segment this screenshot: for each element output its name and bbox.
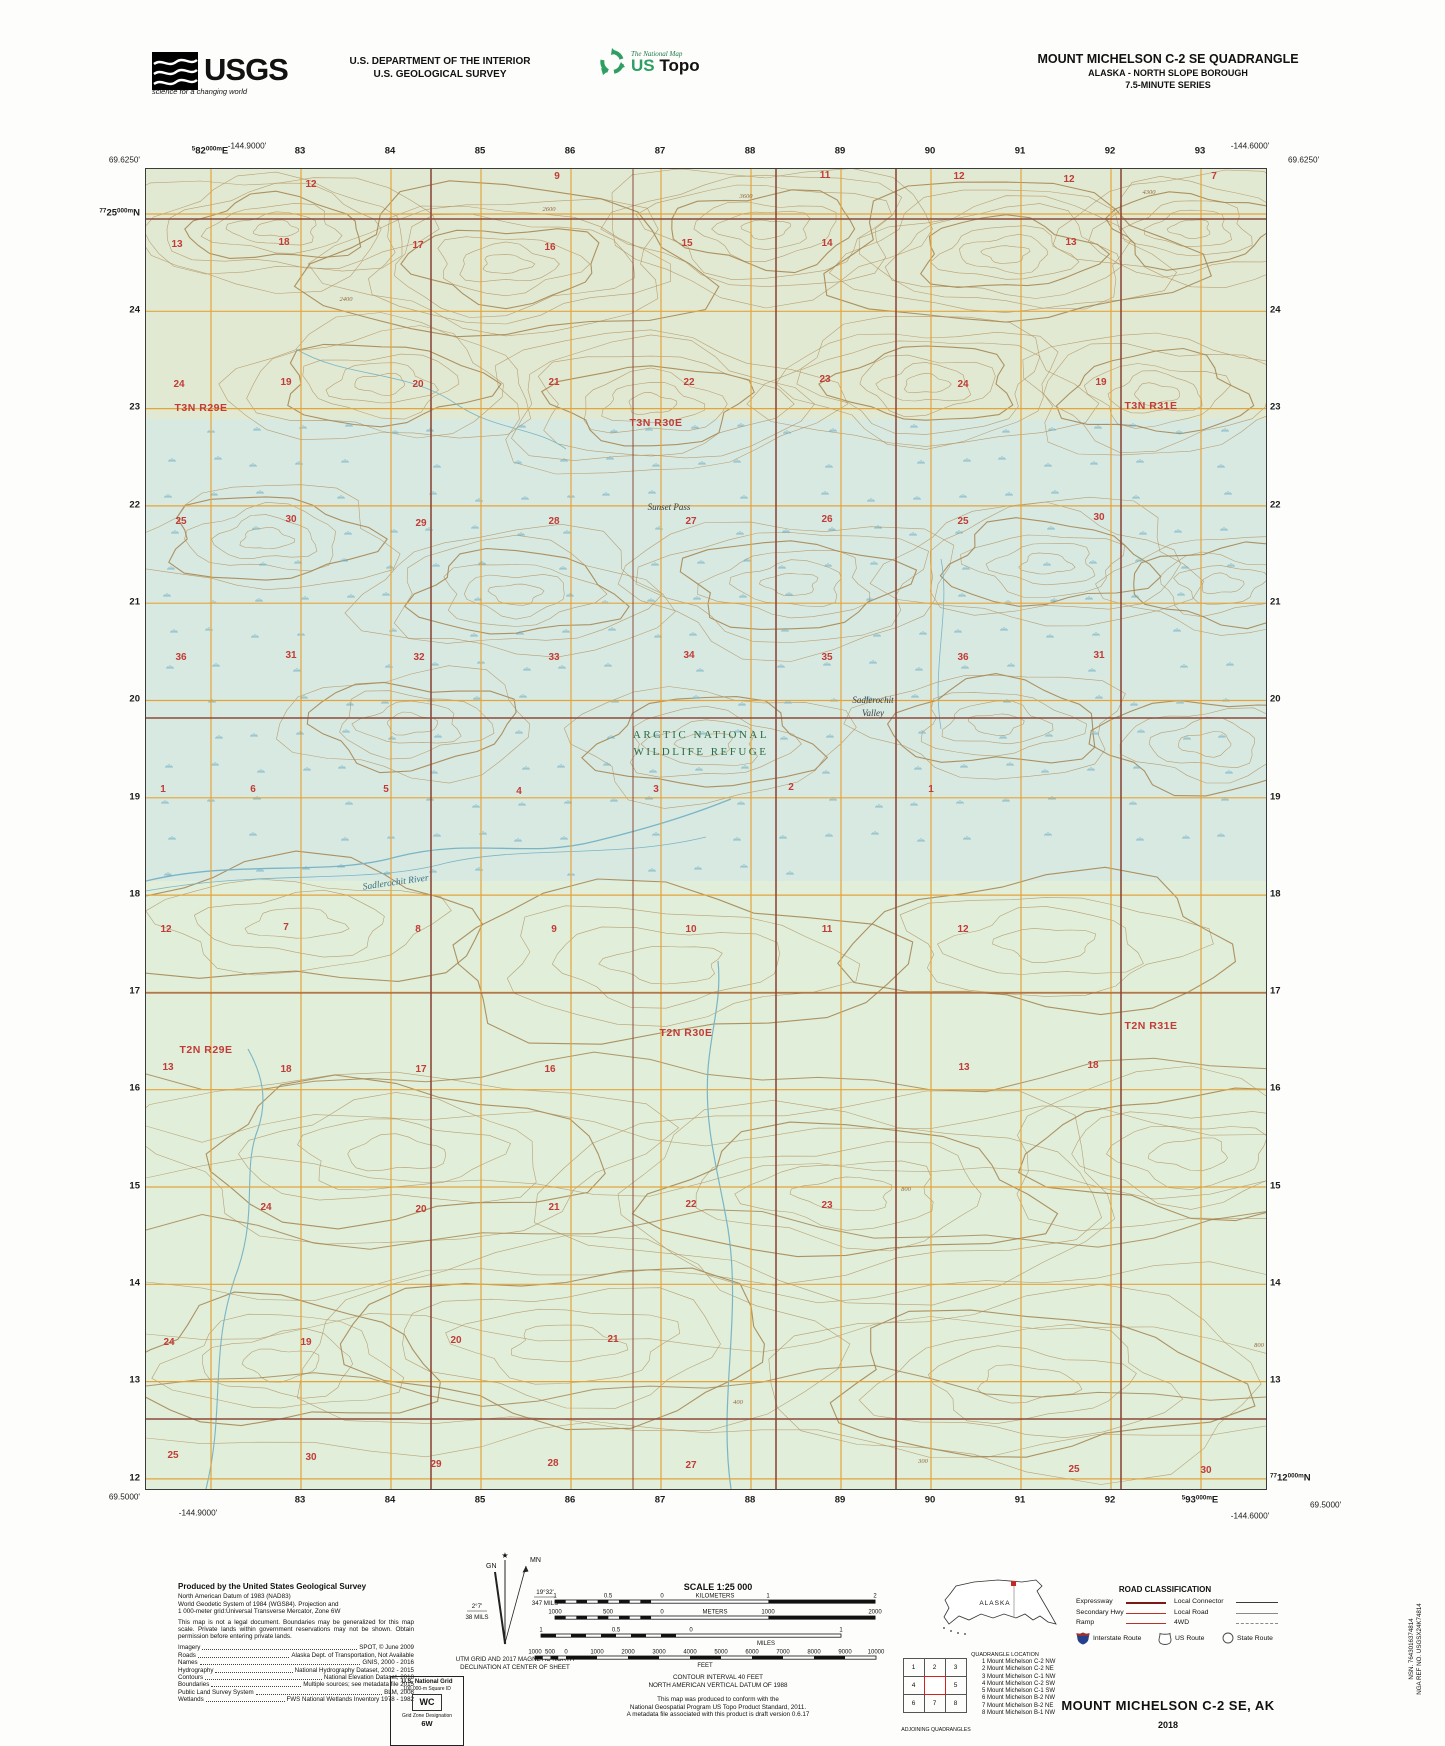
section-number: 36 (175, 652, 187, 663)
corner-coordinate: 69.6250' (1288, 156, 1319, 165)
svg-text:MN: MN (530, 1557, 541, 1564)
scale-tick-label: 1 (839, 1628, 843, 1634)
adjoining-quad-name: 3 Mount Michelson C-1 NW (982, 1674, 1055, 1681)
section-number: 7 (283, 922, 289, 933)
usng-title: U.S. National Grid (391, 1679, 463, 1685)
scale-tick-label: 2 (873, 1594, 877, 1600)
scale-tick-label: 1 (766, 1594, 770, 1600)
quad-subtitle: ALASKA - NORTH SLOPE BOROUGH (1018, 68, 1318, 78)
legal-note: This map is not a legal document. Bounda… (178, 1619, 414, 1641)
scale-unit-label: FEET (697, 1663, 713, 1669)
township-range-label: T3N R29E (174, 402, 227, 414)
scale-tick-label: 1000 (548, 1610, 562, 1616)
usng-box: U.S. National Grid 100,000-m Square ID W… (390, 1676, 464, 1746)
datum-line: 1 000-meter grid:Universal Transverse Me… (178, 1608, 414, 1616)
usgs-wave-icon (152, 52, 198, 90)
utm-grid-label-right: 24 (1270, 305, 1281, 316)
section-number: 25 (167, 1450, 179, 1461)
utm-grid-label-right: 16 (1270, 1083, 1281, 1094)
adjoining-quadrangle-caption: ADJOINING QUADRANGLES (895, 1727, 977, 1733)
pass-label: Sunset Pass (648, 502, 691, 512)
section-number: 1 (928, 784, 934, 795)
section-number: 24 (957, 379, 969, 390)
us-route-shield-icon (1158, 1632, 1172, 1645)
department-header: U.S. DEPARTMENT OF THE INTERIOR U.S. GEO… (310, 55, 570, 81)
interstate-shield-icon (1076, 1632, 1090, 1645)
utm-grid-label-left: 16 (129, 1083, 140, 1094)
scale-tick-label: 8000 (807, 1650, 821, 1656)
road-class-label: 4WD (1174, 1619, 1189, 1626)
utm-grid-label-top: 87 (655, 146, 666, 157)
road-class-sample (1236, 1613, 1278, 1614)
road-class-label: Local Road (1174, 1609, 1208, 1616)
utm-grid-label-right: 21 (1270, 597, 1281, 608)
section-number: 13 (958, 1062, 970, 1073)
adjoining-quad-name: 5 Mount Michelson C-1 SW (982, 1688, 1055, 1695)
adjoining-cell: 8 (945, 1694, 967, 1713)
section-number: 20 (415, 1204, 427, 1215)
utm-grid-label-top: 83 (295, 146, 306, 157)
road-class-label: Secondary Hwy (1076, 1609, 1124, 1616)
utm-grid-label-right: 15 (1270, 1181, 1281, 1192)
section-number: 18 (280, 1064, 292, 1075)
section-number: 17 (415, 1064, 427, 1075)
section-number: 30 (285, 514, 297, 525)
section-number: 21 (607, 1334, 619, 1345)
section-number: 24 (173, 379, 185, 390)
utm-grid-label-top: 93 (1195, 146, 1206, 157)
section-number: 19 (1095, 377, 1107, 388)
road-class-sample (1126, 1602, 1166, 1604)
state-route-circle-icon (1222, 1632, 1234, 1644)
contour-elevation-label: 800 (901, 1186, 912, 1193)
scale-tick-label: KILOMETERS (696, 1594, 735, 1600)
utm-grid-label-bottom: 89 (835, 1495, 846, 1506)
utm-grid-label: 593000mE (1182, 1495, 1219, 1506)
section-number: 19 (300, 1337, 312, 1348)
contour-elevation-label: 400 (733, 1399, 744, 1406)
section-number: 31 (1093, 650, 1105, 661)
scale-tick-label: 7000 (776, 1650, 790, 1656)
section-number: 16 (544, 242, 556, 253)
datum-lines: North American Datum of 1983 (NAD83)Worl… (178, 1593, 414, 1616)
utm-grid-label: 7712000mN (1270, 1473, 1311, 1484)
adjoining-cell: 4 (903, 1676, 925, 1695)
scale-tick-label: 500 (603, 1610, 614, 1616)
road-class-sample (1236, 1623, 1278, 1624)
nsn-reference: NSN. 7643016374814 NGA REF NO. USGSX24K7… (1408, 1554, 1426, 1744)
section-number: 7 (1211, 171, 1217, 182)
adjoining-quadrangle-grid: 12345678 (903, 1658, 966, 1712)
scale-tick-label: METERS (702, 1610, 727, 1616)
section-number: 19 (280, 377, 292, 388)
credit-value: National Hydrography Dataset, 2002 - 201… (295, 1667, 414, 1674)
conformance-note: This map was produced to conform with th… (568, 1696, 868, 1719)
conformance-line: This map was produced to conform with th… (568, 1696, 868, 1704)
section-number: 4 (516, 786, 522, 797)
section-number: 29 (415, 518, 427, 529)
section-number: 28 (548, 516, 560, 527)
scale-tick-label: 4000 (683, 1650, 697, 1656)
svg-text:2°7': 2°7' (472, 1603, 483, 1610)
us-topo-wordmark: US Topo (631, 58, 700, 74)
us-topo-topo: Topo (659, 56, 699, 75)
credit-label: Imagery (178, 1644, 200, 1651)
adjoining-cell: 6 (903, 1694, 925, 1713)
scale-tick-label: 0 (689, 1628, 693, 1634)
section-number: 25 (175, 516, 187, 527)
section-number: 15 (681, 238, 693, 249)
section-number: 24 (260, 1202, 272, 1213)
quadrangle-header: MOUNT MICHELSON C-2 SE QUADRANGLE ALASKA… (1018, 52, 1318, 90)
section-number: 21 (548, 377, 560, 388)
section-number: 25 (957, 516, 969, 527)
scale-tick-label: 5000 (714, 1650, 728, 1656)
utm-grid-label-bottom: 90 (925, 1495, 936, 1506)
usgs-wordmark: USGS (204, 52, 288, 88)
section-number: 12 (957, 924, 969, 935)
nga-ref-line: NGA REF NO. USGSX24K74814 (1416, 1554, 1424, 1744)
section-number: 30 (305, 1452, 317, 1463)
usng-zone: 6W (391, 1719, 463, 1728)
utm-grid-label-left: 14 (129, 1278, 140, 1289)
utm-grid-label-left: 23 (129, 402, 140, 413)
topo-art: 1291112127131817161514132419202122232419… (146, 169, 1266, 1489)
usng-square-label: 100,000-m Square ID (391, 1686, 463, 1692)
contour-elevation-label: 3600 (739, 193, 754, 200)
utm-grid-label-bottom: 86 (565, 1495, 576, 1506)
credit-label: Names (178, 1659, 198, 1666)
utm-grid-label-right: 17 (1270, 986, 1281, 997)
section-number: 29 (430, 1459, 442, 1470)
utm-grid-label-right: 14 (1270, 1278, 1281, 1289)
topo-map-canvas: 1291112127131817161514132419202122232419… (145, 168, 1267, 1490)
section-number: 21 (548, 1202, 560, 1213)
utm-grid-label-bottom: 91 (1015, 1495, 1026, 1506)
section-number: 22 (683, 377, 695, 388)
section-number: 32 (413, 652, 425, 663)
credit-label: Contours (178, 1674, 203, 1681)
state-route-label: State Route (1237, 1635, 1273, 1642)
utm-grid-label-bottom: 83 (295, 1495, 306, 1506)
scale-tick-label: 3000 (652, 1650, 666, 1656)
credit-row: NamesGNIS, 2000 - 2016 (178, 1659, 414, 1666)
scale-tick-label: 1 (539, 1628, 543, 1634)
utm-grid-label-top: 90 (925, 146, 936, 157)
section-number: 10 (685, 924, 697, 935)
us-topo-logo: The National Map US Topo (598, 48, 700, 76)
section-number: 1 (160, 784, 166, 795)
credit-row: Public Land Survey SystemBLM, 2008 (178, 1689, 414, 1696)
utm-grid-label-top: 89 (835, 146, 846, 157)
utm-grid-label-right: 13 (1270, 1375, 1281, 1386)
contour-elevation-label: 4300 (1143, 189, 1157, 196)
section-number: 18 (1087, 1060, 1099, 1071)
utm-grid-label-right: 19 (1270, 792, 1281, 803)
scale-tick-label: 1000 (528, 1650, 542, 1656)
scale-tick-label: 1 (553, 1594, 557, 1600)
utm-grid-label-bottom: 88 (745, 1495, 756, 1506)
section-number: 28 (547, 1458, 559, 1469)
section-number: 13 (171, 239, 183, 250)
scale-tick-label: 0 (660, 1610, 664, 1616)
section-number: 3 (653, 784, 659, 795)
scale-tick-label: 0 (564, 1650, 568, 1656)
utm-grid-label: 582000mE (192, 146, 229, 157)
scale-tick-label: 1000 (761, 1610, 775, 1616)
section-number: 12 (305, 179, 317, 190)
adjoining-quad-name: 2 Mount Michelson C-2 NE (982, 1666, 1055, 1673)
usng-square-id: WC (412, 1694, 442, 1711)
section-number: 5 (383, 784, 389, 795)
adjoining-cell: 1 (903, 1658, 925, 1677)
sheet-year: 2018 (1018, 1720, 1318, 1730)
section-number: 36 (957, 652, 969, 663)
section-number: 18 (278, 237, 290, 248)
section-number: 9 (551, 924, 557, 935)
utm-grid-label-top: 86 (565, 146, 576, 157)
credit-row: ContoursNational Elevation Dataset, 2018 (178, 1674, 414, 1681)
utm-grid-label-left: 12 (129, 1473, 140, 1484)
section-number: 22 (685, 1199, 697, 1210)
section-number: 24 (163, 1337, 175, 1348)
section-number: 13 (1065, 237, 1077, 248)
credit-label: Public Land Survey System (178, 1689, 254, 1696)
adjoining-cell: 2 (924, 1658, 946, 1677)
credit-row: BoundariesMultiple sources; see metadata… (178, 1681, 414, 1688)
svg-text:GN: GN (486, 1563, 497, 1570)
valley-label-line1: Sadlerochit (852, 695, 894, 705)
dept-line2: U.S. GEOLOGICAL SURVEY (310, 68, 570, 81)
utm-grid-label-left: 13 (129, 1375, 140, 1386)
township-range-label: T2N R29E (179, 1044, 232, 1056)
utm-grid-label-left: 19 (129, 792, 140, 803)
scale-tick-label: 10000 (868, 1650, 885, 1656)
section-number: 26 (821, 514, 833, 525)
credit-label: Boundaries (178, 1681, 209, 1688)
quad-series: 7.5-MINUTE SERIES (1018, 80, 1318, 90)
interstate-route-label: Interstate Route (1093, 1635, 1141, 1642)
section-number: 8 (415, 924, 421, 935)
credit-label: Hydrography (178, 1667, 213, 1674)
scale-tick-label: 2000 (868, 1610, 882, 1616)
adjoining-quad-name: 1 Mount Michelson C-2 NW (982, 1659, 1055, 1666)
township-range-label: T2N R30E (659, 1027, 712, 1039)
contour-note-line1: CONTOUR INTERVAL 40 FEET (618, 1674, 818, 1682)
section-number: 30 (1093, 512, 1105, 523)
contour-note-line2: NORTH AMERICAN VERTICAL DATUM OF 1988 (618, 1682, 818, 1690)
road-class-label: Ramp (1076, 1619, 1094, 1626)
road-class-sample (1236, 1602, 1278, 1603)
nsn-line: NSN. 7643016374814 (1408, 1554, 1416, 1744)
contour-elevation-label: 300 (917, 1458, 929, 1465)
contour-elevation-label: 2600 (543, 206, 557, 213)
scale-bars: 10.50KILOMETERS1210005000METERS100020001… (495, 1590, 955, 1682)
corner-coordinate: -144.6000' (1231, 1512, 1269, 1521)
utm-grid-label-top: 85 (475, 146, 486, 157)
scale-tick-label: 0 (660, 1594, 664, 1600)
section-number: 35 (821, 652, 833, 663)
valley-label-line2: Valley (862, 708, 884, 718)
section-number: 6 (250, 784, 256, 795)
scale-tick-label: 6000 (745, 1650, 759, 1656)
dept-line1: U.S. DEPARTMENT OF THE INTERIOR (310, 55, 570, 68)
credit-rows: ImagerySPOT, © June 2009RoadsAlaska Dept… (178, 1644, 414, 1703)
credit-value: SPOT, © June 2009 (359, 1644, 414, 1651)
datum-line: North American Datum of 1983 (NAD83) (178, 1593, 414, 1601)
credits-heading: Produced by the United States Geological… (178, 1582, 414, 1591)
contour-elevation-label: 800 (1254, 1342, 1265, 1349)
credit-row: WetlandsFWS National Wetlands Inventory … (178, 1696, 414, 1703)
scale-tick-label: 500 (545, 1650, 556, 1656)
credit-row: ImagerySPOT, © June 2009 (178, 1644, 414, 1651)
utm-grid-label: 7725000mN (99, 208, 140, 219)
section-number: 27 (685, 516, 697, 527)
credit-row: HydrographyNational Hydrography Dataset,… (178, 1667, 414, 1674)
utm-grid-label-top: 84 (385, 146, 396, 157)
contour-elevation-label: 2400 (340, 296, 354, 303)
contour-interval-note: CONTOUR INTERVAL 40 FEET NORTH AMERICAN … (618, 1674, 818, 1690)
corner-coordinate: 69.6250' (109, 156, 140, 165)
section-number: 11 (820, 170, 831, 181)
road-class-label: Local Connector (1174, 1598, 1224, 1605)
section-number: 11 (822, 924, 833, 935)
credit-label: Wetlands (178, 1696, 204, 1703)
utm-grid-label-left: 20 (129, 694, 140, 705)
corner-coordinate: -144.6000' (1231, 142, 1269, 151)
quad-location-marker (1011, 1581, 1016, 1586)
road-classification-title: ROAD CLASSIFICATION (1065, 1585, 1265, 1594)
section-number: 12 (953, 171, 965, 182)
adjoining-center-cell (924, 1676, 946, 1695)
sheet-title-block: MOUNT MICHELSON C-2 SE, AK 2018 (1018, 1698, 1318, 1730)
utm-grid-label-left: 15 (129, 1181, 140, 1192)
utm-grid-label-bottom: 85 (475, 1495, 486, 1506)
us-topo-us: US (631, 56, 655, 75)
road-class-sample (1126, 1613, 1166, 1614)
section-number: 23 (821, 1200, 833, 1211)
section-number: 14 (821, 238, 833, 249)
township-range-label: T3N R30E (629, 417, 682, 429)
adjoining-cell: 7 (924, 1694, 946, 1713)
utm-grid-label-left: 24 (129, 305, 140, 316)
scale-tick-label: 2000 (621, 1650, 635, 1656)
utm-grid-label-left: 18 (129, 889, 140, 900)
utm-grid-label-bottom: 84 (385, 1495, 396, 1506)
utm-grid-label-left: 17 (129, 986, 140, 997)
utm-grid-label-right: 18 (1270, 889, 1281, 900)
section-number: 30 (1200, 1465, 1212, 1476)
section-number: 23 (819, 374, 831, 385)
section-number: 12 (1063, 174, 1075, 185)
refuge-label-line1: ARCTIC NATIONAL (633, 729, 769, 741)
utm-grid-label-bottom: 87 (655, 1495, 666, 1506)
usgs-tagline: science for a changing world (152, 87, 342, 96)
utm-grid-label-left: 22 (129, 500, 140, 511)
adjoining-cell: 5 (945, 1676, 967, 1695)
us-route-label: US Route (1175, 1635, 1204, 1642)
section-number: 9 (554, 171, 560, 182)
corner-coordinate: -144.9000' (179, 1509, 217, 1518)
svg-text:38 MILS: 38 MILS (465, 1614, 488, 1621)
conformance-line: National Geospatial Program US Topo Prod… (568, 1704, 868, 1712)
state-name: ALASKA (979, 1600, 1010, 1607)
section-number: 12 (160, 924, 172, 935)
national-map-icon (598, 48, 626, 76)
quad-title: MOUNT MICHELSON C-2 SE QUADRANGLE (1018, 52, 1318, 66)
datum-line: World Geodetic System of 1984 (WGS84). P… (178, 1601, 414, 1609)
utm-grid-label-left: 21 (129, 597, 140, 608)
utm-grid-label-top: 91 (1015, 146, 1026, 157)
state-locator-inset: ALASKA (940, 1572, 1070, 1650)
adjoining-quad-name: 4 Mount Michelson C-2 SW (982, 1681, 1055, 1688)
credit-value: GNIS, 2000 - 2016 (362, 1659, 414, 1666)
corner-coordinate: 69.5000' (1310, 1501, 1341, 1510)
section-number: 2 (788, 782, 794, 793)
township-range-label: T2N R31E (1124, 1020, 1177, 1032)
section-number: 20 (412, 379, 424, 390)
conformance-line: A metadata file associated with this pro… (568, 1711, 868, 1719)
scale-tick-label: 0.5 (604, 1594, 613, 1600)
credit-value: Alaska Dept. of Transportation, Not Avai… (291, 1652, 414, 1659)
svg-text:★: ★ (501, 1551, 508, 1560)
utm-grid-label-right: 20 (1270, 694, 1281, 705)
section-number: 27 (685, 1460, 697, 1471)
utm-grid-label-right: 23 (1270, 402, 1281, 413)
utm-grid-label-top: 88 (745, 146, 756, 157)
credit-label: Roads (178, 1652, 196, 1659)
scale-unit-label: MILES (757, 1641, 775, 1647)
refuge-label-line2: WILDLIFE REFUGE (634, 746, 769, 758)
corner-coordinate: -144.9000' (228, 142, 266, 151)
credit-row: RoadsAlaska Dept. of Transportation, Not… (178, 1652, 414, 1659)
township-range-label: T3N R31E (1124, 400, 1177, 412)
section-number: 25 (1068, 1464, 1080, 1475)
utm-grid-label-bottom: 92 (1105, 1495, 1116, 1506)
utm-grid-label-right: 22 (1270, 500, 1281, 511)
section-number: 34 (683, 650, 695, 661)
scale-tick-label: 1000 (590, 1650, 604, 1656)
adjoining-cell: 3 (945, 1658, 967, 1677)
section-number: 16 (544, 1064, 556, 1075)
section-number: 33 (548, 652, 560, 663)
section-number: 13 (162, 1062, 174, 1073)
section-number: 17 (412, 240, 424, 251)
corner-coordinate: 69.5000' (109, 1493, 140, 1502)
road-class-sample (1126, 1623, 1166, 1624)
utm-grid-label-top: 92 (1105, 146, 1116, 157)
credits-block: Produced by the United States Geological… (178, 1582, 414, 1704)
scale-tick-label: 0.5 (612, 1628, 621, 1634)
scale-tick-label: 9000 (838, 1650, 852, 1656)
road-class-label: Expressway (1076, 1598, 1113, 1605)
sheet-title: MOUNT MICHELSON C-2 SE, AK (1018, 1698, 1318, 1713)
section-number: 31 (285, 650, 297, 661)
section-number: 20 (450, 1335, 462, 1346)
